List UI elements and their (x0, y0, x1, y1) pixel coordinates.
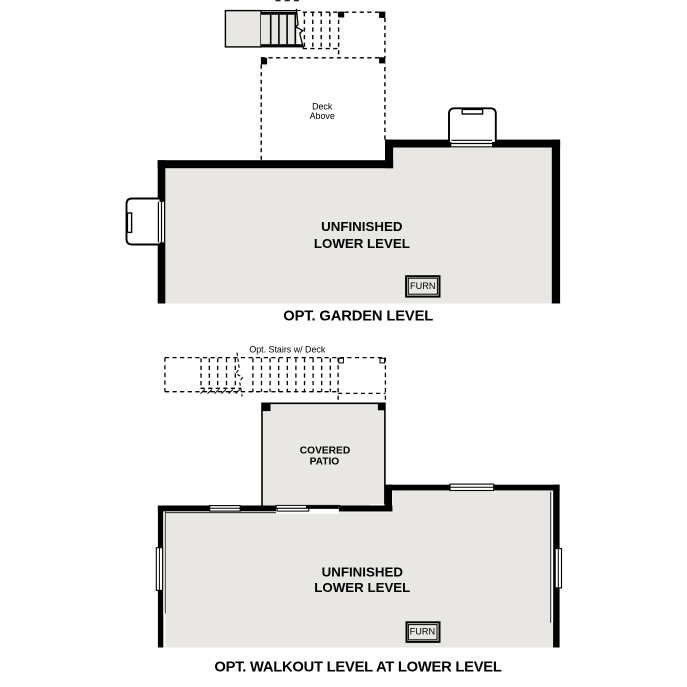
svg-text:COVERED: COVERED (300, 445, 350, 456)
svg-text:Deck: Deck (312, 101, 333, 111)
svg-text:FURN: FURN (410, 627, 436, 637)
svg-text:OPT. GARDEN LEVEL: OPT. GARDEN LEVEL (283, 309, 433, 325)
svg-text:LOWER LEVEL: LOWER LEVEL (314, 580, 410, 595)
svg-text:FURN: FURN (410, 281, 436, 291)
svg-text:Above: Above (310, 111, 335, 121)
svg-text:UNFINISHED: UNFINISHED (322, 565, 404, 580)
svg-text:PATIO: PATIO (310, 457, 340, 468)
svg-text:LOWER LEVEL: LOWER LEVEL (314, 236, 410, 251)
svg-text:UNFINISHED: UNFINISHED (321, 219, 403, 234)
svg-text:Opt. Stairs w/ Deck: Opt. Stairs w/ Deck (249, 345, 326, 355)
svg-text:OPT. WALKOUT LEVEL AT LOWER LE: OPT. WALKOUT LEVEL AT LOWER LEVEL (214, 660, 502, 676)
